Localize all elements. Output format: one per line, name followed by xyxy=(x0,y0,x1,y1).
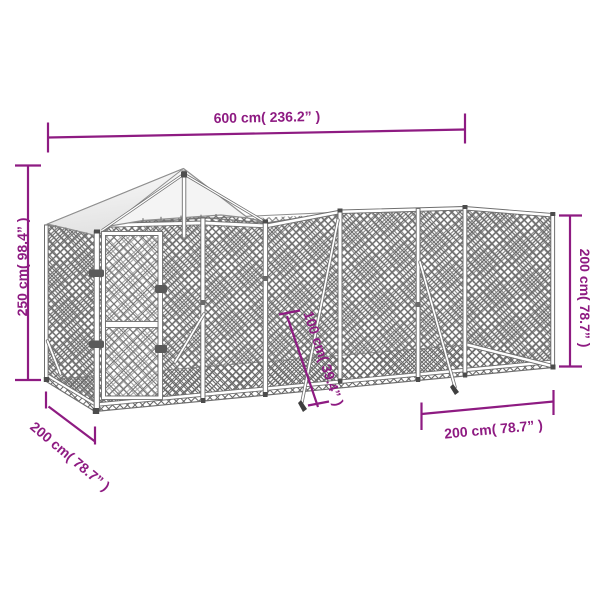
svg-text:200 cm( 78.7” ): 200 cm( 78.7” ) xyxy=(577,249,593,348)
svg-text:200 cm( 78.7” ): 200 cm( 78.7” ) xyxy=(444,416,544,441)
svg-text:200 cm( 78.7” ): 200 cm( 78.7” ) xyxy=(27,418,113,494)
svg-text:600 cm( 236.2” ): 600 cm( 236.2” ) xyxy=(213,108,320,126)
svg-text:250 cm( 98.4” ): 250 cm( 98.4” ) xyxy=(14,218,30,317)
